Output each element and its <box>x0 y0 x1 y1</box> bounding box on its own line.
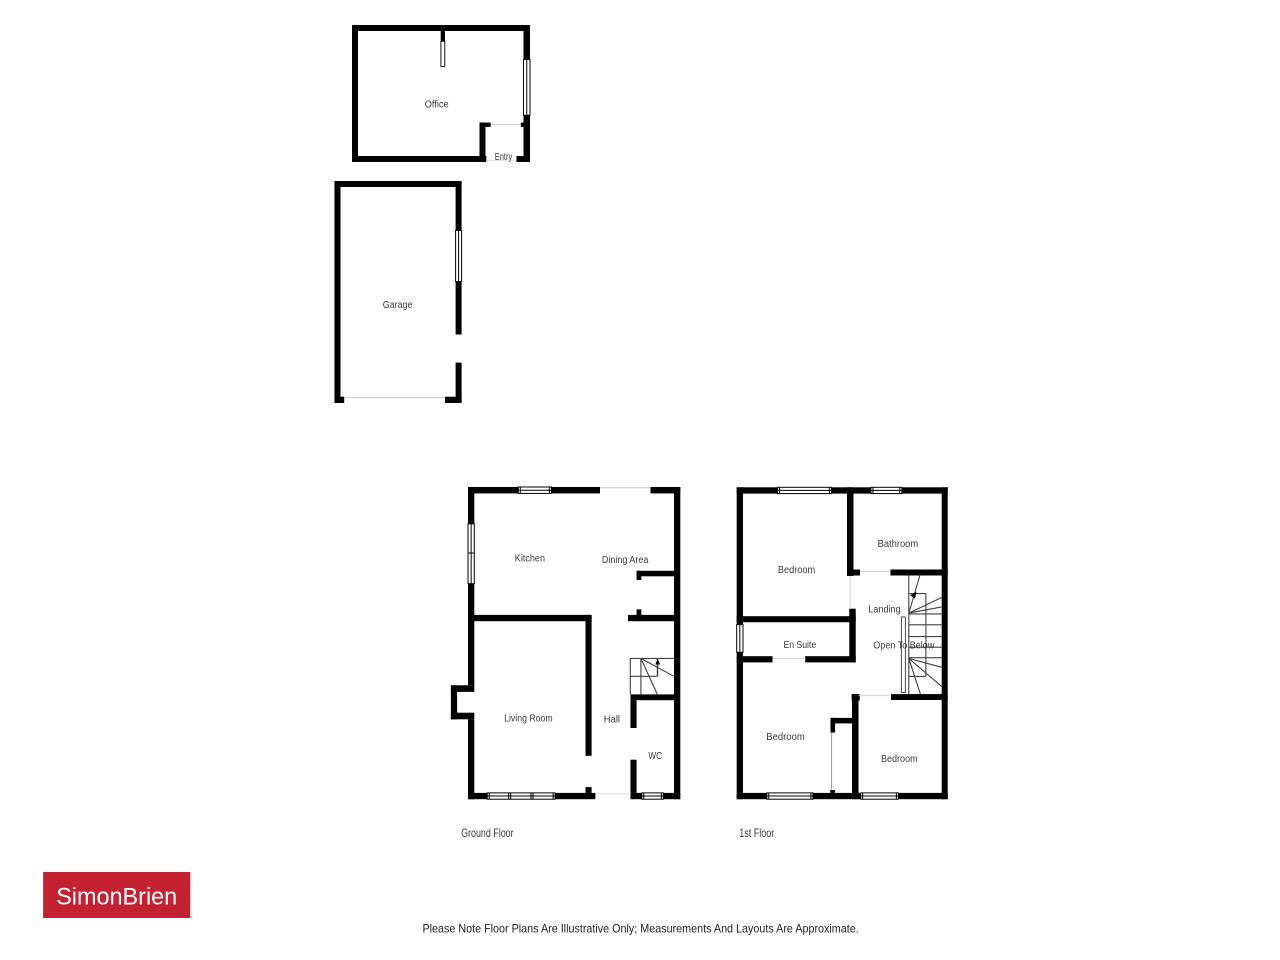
svg-text:Bedroom: Bedroom <box>881 754 918 765</box>
svg-text:Bedroom: Bedroom <box>766 732 805 743</box>
svg-text:En Suite: En Suite <box>783 640 816 651</box>
svg-text:1st Floor: 1st Floor <box>739 826 774 840</box>
svg-text:Please Note Floor Plans Are Il: Please Note Floor Plans Are Illustrative… <box>422 922 858 936</box>
svg-text:Bathroom: Bathroom <box>878 539 919 550</box>
svg-text:SimonBrien: SimonBrien <box>56 884 177 911</box>
svg-text:Bedroom: Bedroom <box>778 565 815 576</box>
svg-text:Ground Floor: Ground Floor <box>461 826 513 840</box>
svg-text:Hall: Hall <box>604 714 620 725</box>
svg-text:Open To Below: Open To Below <box>873 641 935 652</box>
svg-text:Dining Area: Dining Area <box>602 555 649 566</box>
svg-text:Garage: Garage <box>383 300 413 311</box>
svg-text:Entry: Entry <box>495 152 513 163</box>
svg-text:Living Room: Living Room <box>504 714 553 725</box>
svg-text:Landing: Landing <box>868 605 900 616</box>
svg-text:WC: WC <box>648 751 662 762</box>
svg-text:Office: Office <box>425 100 449 111</box>
svg-text:Kitchen: Kitchen <box>515 554 545 565</box>
